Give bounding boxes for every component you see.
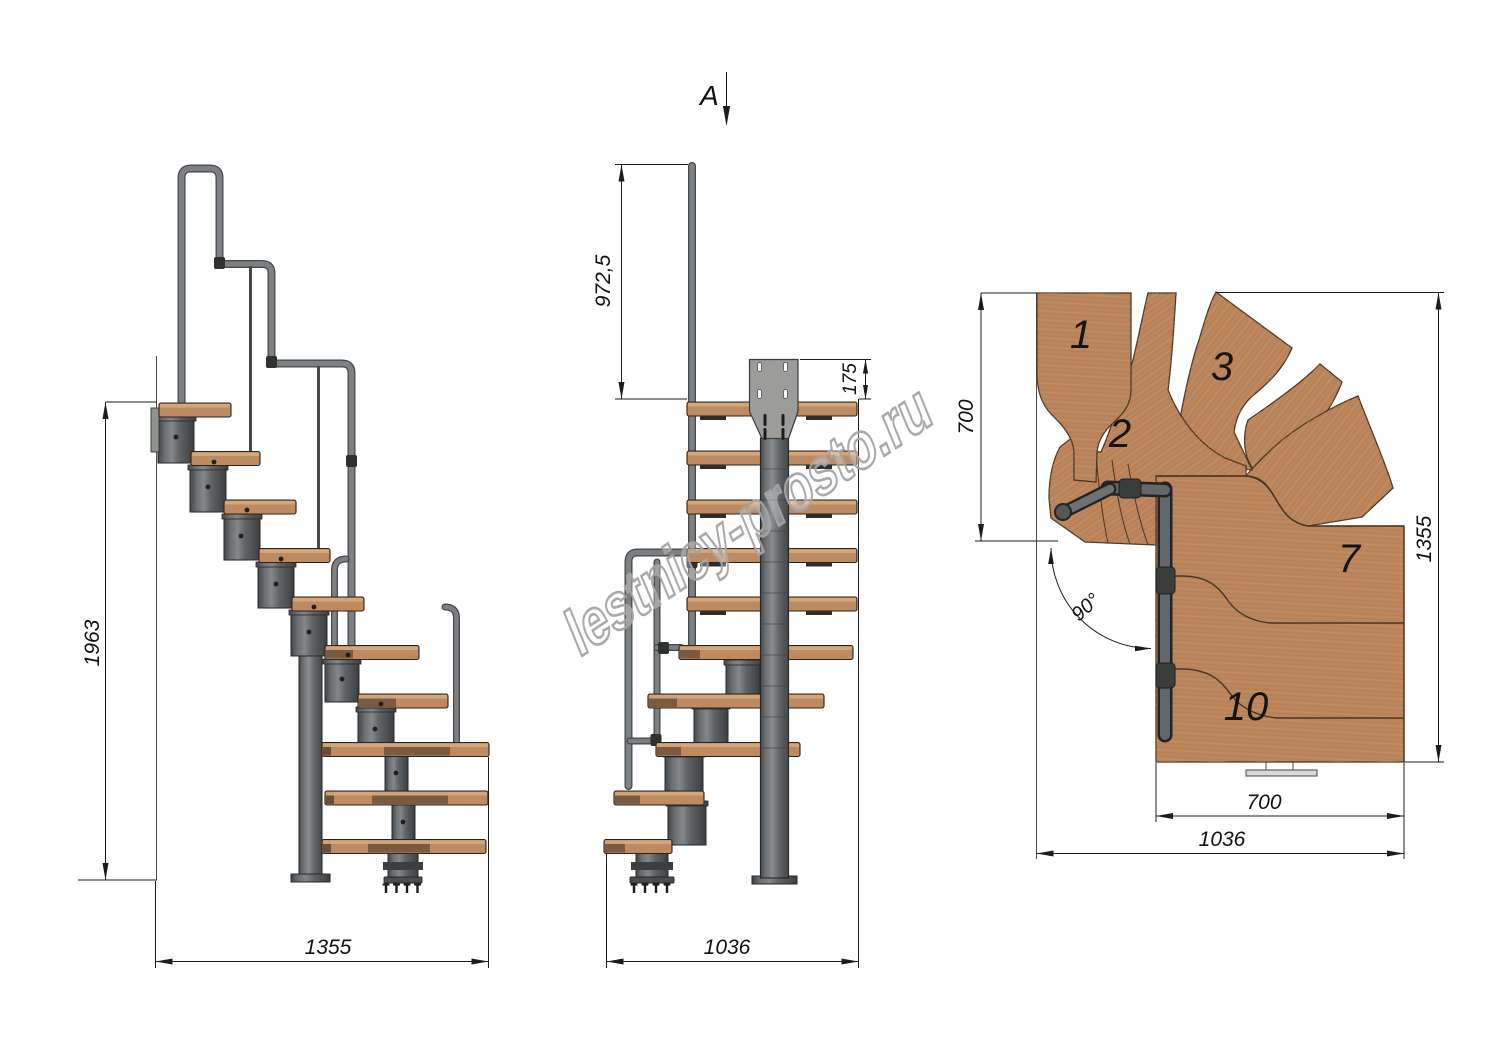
svg-text:1036: 1036	[704, 936, 751, 959]
svg-text:10: 10	[1224, 685, 1269, 729]
svg-text:3: 3	[1211, 345, 1233, 389]
svg-text:A: A	[698, 80, 719, 111]
svg-text:175: 175	[840, 363, 861, 395]
svg-text:972,5: 972,5	[592, 254, 615, 307]
svg-text:1355: 1355	[1413, 515, 1436, 562]
svg-text:700: 700	[955, 399, 978, 434]
svg-text:1036: 1036	[1199, 828, 1246, 851]
svg-text:1355: 1355	[305, 936, 352, 959]
svg-text:2: 2	[1108, 412, 1131, 456]
svg-text:1963: 1963	[81, 619, 104, 666]
svg-text:700: 700	[1246, 791, 1281, 814]
svg-text:1: 1	[1070, 313, 1092, 357]
svg-text:7: 7	[1338, 537, 1362, 581]
